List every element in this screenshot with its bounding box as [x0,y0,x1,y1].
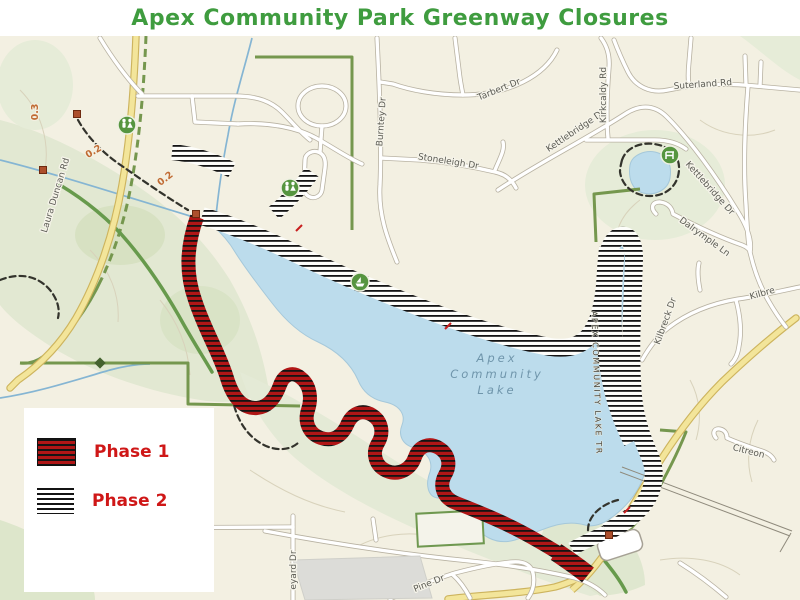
legend-swatch-phase2 [37,488,74,514]
lake-label: Community [450,367,544,381]
building-footprint [293,556,432,600]
legend: Phase 1 Phase 2 [24,408,214,592]
legend-label-phase2: Phase 2 [92,491,167,511]
legend-swatch-phase1 [37,438,76,466]
trailhead-marker [193,211,200,218]
restroom-icon [118,116,136,134]
restroom-icon [281,179,299,197]
trailhead-marker [74,111,81,118]
dist-label: 0.3 [30,104,41,121]
bench-icon [661,146,679,164]
legend-row-phase2: Phase 2 [37,488,214,514]
lake-label: Lake [477,383,516,397]
road-label: eyard Dr [289,550,299,589]
trailhead-marker [40,167,47,174]
map-screenshot: Apex Community Park Greenway Closures [0,0,800,600]
title-bar: Apex Community Park Greenway Closures [0,0,800,36]
trailhead-marker [606,532,613,539]
legend-label-phase1: Phase 1 [94,442,169,462]
road-label: Kirkcaldy Rd [599,67,609,123]
page-title: Apex Community Park Greenway Closures [131,6,668,31]
legend-row-phase1: Phase 1 [37,438,214,466]
lake-label: Apex [475,351,517,365]
boat-icon [351,273,369,291]
